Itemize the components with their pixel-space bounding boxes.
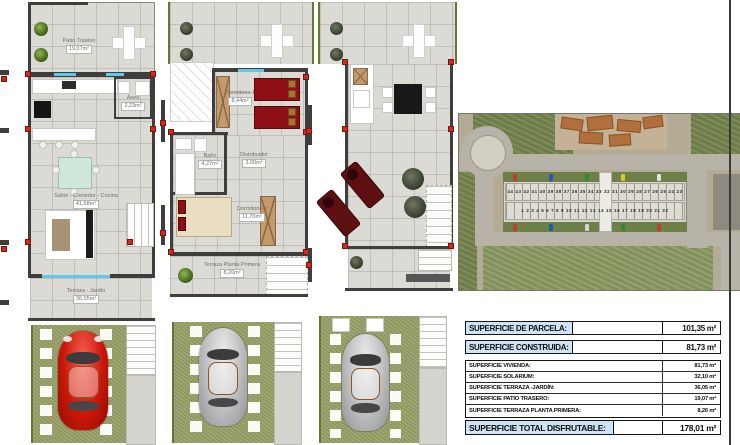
- entry-path: [126, 375, 156, 445]
- floor-plan-ground: Patio Trasero 19,07m² Aseo 2,23m²: [14, 0, 164, 445]
- section-mark: [448, 243, 454, 249]
- kitchen-island: [32, 128, 96, 141]
- windshield: [66, 352, 100, 364]
- room-area: 2,23m²: [121, 102, 144, 111]
- plan-sheet: Patio Trasero 19,07m² Aseo 2,23m²: [0, 0, 740, 445]
- room-name: Dormitorio 2: [226, 206, 278, 213]
- wall: [28, 318, 155, 321]
- room-label-distribuidor: Distribuidor 3,00m²: [228, 152, 280, 168]
- room-label-patio: Patio Trasero 19,07m²: [48, 38, 110, 54]
- wall: [170, 294, 308, 297]
- row-label: SUPERFICIE VIVIENDA:: [466, 361, 662, 371]
- sink: [353, 90, 370, 108]
- section-mark: [306, 262, 312, 268]
- room-name: Terraza Planta Primera: [194, 262, 270, 269]
- row-spacer: [573, 322, 662, 334]
- wall: [28, 77, 31, 277]
- roundabout-center: [470, 135, 506, 171]
- parked-car-dot: [549, 224, 553, 231]
- wall: [212, 68, 215, 136]
- wall: [345, 288, 453, 291]
- section-mark: [25, 126, 31, 132]
- plant: [350, 256, 363, 269]
- parked-car-dot: [549, 174, 553, 181]
- section-mark: [168, 129, 174, 135]
- table-row-total: SUPERFICIE TOTAL DISFRUTABLE: 178,01 m²: [465, 420, 721, 435]
- steps: [418, 249, 452, 271]
- room-area: 36,05m²: [73, 295, 99, 304]
- section-mark: [168, 249, 174, 255]
- floor-plan-solarium: [318, 0, 455, 445]
- edge-wall-stub: [0, 300, 9, 305]
- pillow: [178, 217, 186, 231]
- row-value: 81,73 m²: [662, 341, 720, 353]
- wall: [28, 2, 31, 76]
- section-mark: [303, 74, 309, 80]
- room-name: Patio Trasero: [48, 38, 110, 45]
- row-value: 32,10 m²: [662, 372, 720, 382]
- plot-line: [88, 2, 155, 3]
- row-label: SUPERFICIE PATIO TRASERO:: [466, 394, 662, 404]
- room-label-bano: Baño 4,27m²: [194, 153, 226, 169]
- room-area: 8,26m²: [220, 269, 243, 278]
- section-mark: [25, 71, 31, 77]
- roof: [579, 131, 604, 144]
- gray-car: [342, 334, 389, 431]
- field: [483, 244, 713, 291]
- entry-steps: [274, 322, 302, 372]
- window: [106, 73, 124, 76]
- patio-table: [402, 24, 436, 58]
- room-name: Aseo: [115, 95, 151, 102]
- gray-car: [199, 328, 247, 426]
- void-roof-below: [170, 62, 214, 122]
- pillow: [178, 200, 186, 214]
- dining-table: [58, 157, 92, 189]
- buildings-block: [713, 174, 740, 230]
- lounger-pillow: [321, 195, 336, 210]
- edge-wall-stub: [308, 105, 312, 145]
- roof: [609, 133, 632, 147]
- entry-steps: [126, 325, 156, 375]
- table-row-parcela: SUPERFICIE DE PARCELA: 101,35 m²: [465, 321, 721, 335]
- shower: [135, 81, 150, 96]
- unit-numbers-top: 44 43 42 41 40 39 38 37 36 35 34 33 32 3…: [506, 189, 684, 194]
- entry-path: [274, 372, 302, 445]
- room-name: Salón - Comedor - Cocina: [44, 193, 128, 200]
- room-name: Baño: [194, 153, 226, 160]
- table-row-construida: SUPERFICIE CONSTRUIDA: 81,73 m²: [465, 340, 721, 354]
- road: [687, 158, 707, 248]
- parked-car-dot: [513, 224, 517, 231]
- section-mark: [1, 246, 7, 252]
- row-label: SUPERFICIE TOTAL DISFRUTABLE:: [466, 421, 614, 434]
- car-roof: [351, 368, 380, 400]
- room-label-dormitorio1: Dormitorio 1 8,44m²: [216, 90, 264, 106]
- toilet: [194, 138, 207, 152]
- patio-table: [260, 24, 294, 58]
- plant: [180, 22, 193, 35]
- room-area: 4,27m²: [198, 160, 221, 169]
- patio-table-part: [413, 24, 425, 58]
- row-label: SUPERFICIE SOLARIUM:: [466, 372, 662, 382]
- chair: [425, 87, 436, 98]
- row-label: SUPERFICIE TERRAZA PLANTA PRIMERA:: [466, 405, 662, 416]
- section-mark: [127, 239, 133, 245]
- room-area: 11,70m²: [239, 213, 265, 222]
- chair: [425, 102, 436, 113]
- room-label-terraza: Terraza - Jardín 36,05m²: [44, 288, 128, 304]
- sofa-cushion: [52, 219, 70, 251]
- rear-window: [351, 403, 380, 413]
- entry-steps: [419, 316, 447, 368]
- window: [238, 69, 264, 72]
- room-label-salon: Salón - Comedor - Cocina 41,58m²: [44, 193, 128, 209]
- pillow: [288, 90, 296, 98]
- cooktop: [62, 81, 76, 89]
- surface-table: SUPERFICIE DE PARCELA: 101,35 m² SUPERFI…: [458, 318, 730, 442]
- section-mark: [342, 243, 348, 249]
- staircase: [426, 185, 452, 247]
- paver-strip: [248, 326, 260, 438]
- section-mark: [306, 128, 312, 134]
- plot-line: [154, 2, 155, 73]
- parked-car-dot: [657, 224, 661, 231]
- patio-table-part: [123, 26, 135, 60]
- roof: [586, 115, 613, 132]
- roof: [617, 119, 642, 133]
- sheet-frame-line: [729, 0, 731, 445]
- aerial-parking-bottom: [503, 222, 687, 232]
- table-row-vivienda: SUPERFICIE VIVIENDA: 81,73 m²: [466, 361, 720, 372]
- chair: [382, 87, 393, 98]
- table-row-solarium: SUPERFICIE SOLARIUM: 32,10 m²: [466, 372, 720, 383]
- edge-wall-stub: [0, 70, 9, 75]
- pillow: [288, 108, 296, 116]
- section-mark: [1, 76, 7, 82]
- chair: [92, 166, 100, 174]
- window: [54, 73, 76, 76]
- row-spacer: [614, 421, 662, 434]
- row-value: 101,35 m²: [662, 322, 720, 334]
- edge-wall-stub: [161, 205, 165, 245]
- table-row-terraza-primera: SUPERFICIE TERRAZA PLANTA PRIMERA: 8,26 …: [466, 405, 720, 416]
- section-mark: [448, 59, 454, 65]
- headlight: [63, 336, 72, 342]
- bathtub: [175, 153, 195, 195]
- paver-strip: [40, 329, 52, 441]
- paver-strip: [330, 334, 341, 438]
- table-row-patio-trasero: SUPERFICIE PATIO TRASERO: 19,07 m²: [466, 394, 720, 405]
- paver-strip: [390, 334, 401, 438]
- patio-table-part: [271, 24, 283, 58]
- planter: [332, 318, 350, 332]
- room-area: 8,44m²: [228, 97, 251, 106]
- chair: [382, 102, 393, 113]
- chair: [52, 166, 60, 174]
- stool: [55, 141, 63, 149]
- section-mark: [150, 71, 156, 77]
- pergola-edge: [406, 274, 450, 282]
- rear-window: [68, 401, 99, 411]
- stool: [39, 141, 47, 149]
- row-label: SUPERFICIE CONSTRUIDA:: [466, 341, 573, 353]
- unit-numbers-bottom: 1 2 3 4 5 6 7 8 9 10 11 12 13 14 15 16 1…: [506, 208, 684, 213]
- entry-path: [419, 368, 447, 445]
- table-row-terraza-jardin: SUPERFICIE TERRAZA -JARDÍN: 36,05 m²: [466, 383, 720, 394]
- patio-table: [112, 26, 146, 60]
- field: [691, 114, 740, 156]
- wall: [170, 132, 173, 258]
- room-label-dormitorio2: Dormitorio 2 11,70m²: [226, 206, 278, 222]
- section-mark: [25, 239, 31, 245]
- parked-car-dot: [621, 224, 625, 231]
- parked-car-dot: [621, 174, 625, 181]
- planter: [366, 318, 384, 332]
- staircase: [266, 256, 308, 296]
- bathroom-sink: [175, 138, 192, 150]
- edge-wall-stub: [0, 240, 9, 245]
- plant: [180, 48, 193, 61]
- room-name: Dormitorio 1: [216, 90, 264, 97]
- cabinet: [353, 68, 368, 85]
- section-mark: [342, 59, 348, 65]
- chair: [70, 150, 78, 158]
- headlight: [94, 336, 103, 342]
- windshield: [350, 354, 382, 366]
- row-value: 81,73 m²: [662, 361, 720, 371]
- plant: [330, 22, 343, 35]
- wall: [170, 132, 228, 135]
- tv-unit: [86, 210, 93, 258]
- rear-window: [208, 398, 238, 408]
- section-mark: [448, 126, 454, 132]
- parked-car-dot: [513, 174, 517, 181]
- pillow: [288, 118, 296, 126]
- parked-car-dot: [585, 174, 589, 181]
- section-mark: [160, 230, 166, 236]
- section-mark: [160, 120, 166, 126]
- fridge: [34, 101, 51, 118]
- room-label-aseo: Aseo 2,23m²: [115, 95, 151, 111]
- wall: [28, 2, 88, 5]
- lounger-pillow: [345, 167, 360, 182]
- parked-car-dot: [657, 174, 661, 181]
- plant: [178, 268, 193, 283]
- row-spacer: [573, 341, 662, 353]
- room-area: 19,07m²: [66, 45, 92, 54]
- table-details: SUPERFICIE VIVIENDA: 81,73 m² SUPERFICIE…: [465, 360, 721, 418]
- parked-car-dot: [585, 224, 589, 231]
- room-name: Distribuidor: [228, 152, 280, 159]
- plant: [402, 168, 424, 190]
- stool: [71, 141, 79, 149]
- aerial-photo: 44 43 42 41 40 39 38 37 36 35 34 33 32 3…: [458, 113, 740, 291]
- outdoor-table: [394, 84, 422, 114]
- plant: [34, 48, 48, 62]
- row-label: SUPERFICIE DE PARCELA:: [466, 322, 573, 334]
- red-car: [58, 331, 108, 430]
- windshield: [207, 349, 240, 361]
- row-value: 8,26 m²: [662, 405, 720, 416]
- car-roof: [208, 362, 238, 394]
- row-value: 36,05 m²: [662, 383, 720, 393]
- plant: [34, 22, 48, 36]
- walkway: [599, 172, 612, 232]
- edge-wall-stub: [0, 128, 9, 133]
- room-area: 41,58m²: [73, 200, 99, 209]
- room-label-terraza-primera: Terraza Planta Primera 8,26m²: [194, 262, 270, 278]
- room-area: 3,00m²: [242, 159, 265, 168]
- floor-plan-first: Dormitorio 1 8,44m² Baño 4,27m² Distribu…: [168, 0, 312, 445]
- wall: [305, 68, 308, 258]
- section-mark: [342, 126, 348, 132]
- section-mark: [150, 126, 156, 132]
- row-value: 19,07 m²: [662, 394, 720, 404]
- row-label: SUPERFICIE TERRAZA -JARDÍN:: [466, 383, 662, 393]
- room-name: Terraza - Jardín: [44, 288, 128, 295]
- plant: [404, 196, 426, 218]
- pillow: [288, 80, 296, 88]
- toilet: [118, 81, 130, 94]
- aerial-parking-top: [503, 172, 687, 182]
- row-value: 178,01 m²: [662, 421, 720, 434]
- car-roof: [68, 366, 99, 399]
- wall: [152, 77, 155, 277]
